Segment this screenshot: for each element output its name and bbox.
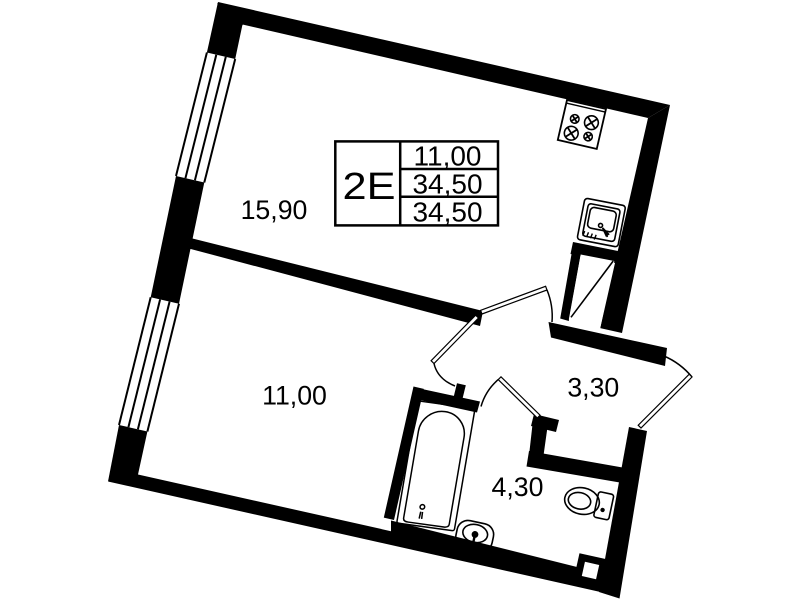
svg-text:4,30: 4,30 — [492, 472, 544, 502]
svg-text:11,00: 11,00 — [414, 141, 482, 172]
svg-text:11,00: 11,00 — [262, 381, 327, 411]
svg-text:2Е: 2Е — [343, 166, 396, 208]
svg-text:15,90: 15,90 — [241, 195, 308, 225]
svg-text:34,50: 34,50 — [412, 168, 482, 199]
svg-text:3,30: 3,30 — [567, 373, 619, 403]
svg-text:34,50: 34,50 — [412, 196, 482, 227]
